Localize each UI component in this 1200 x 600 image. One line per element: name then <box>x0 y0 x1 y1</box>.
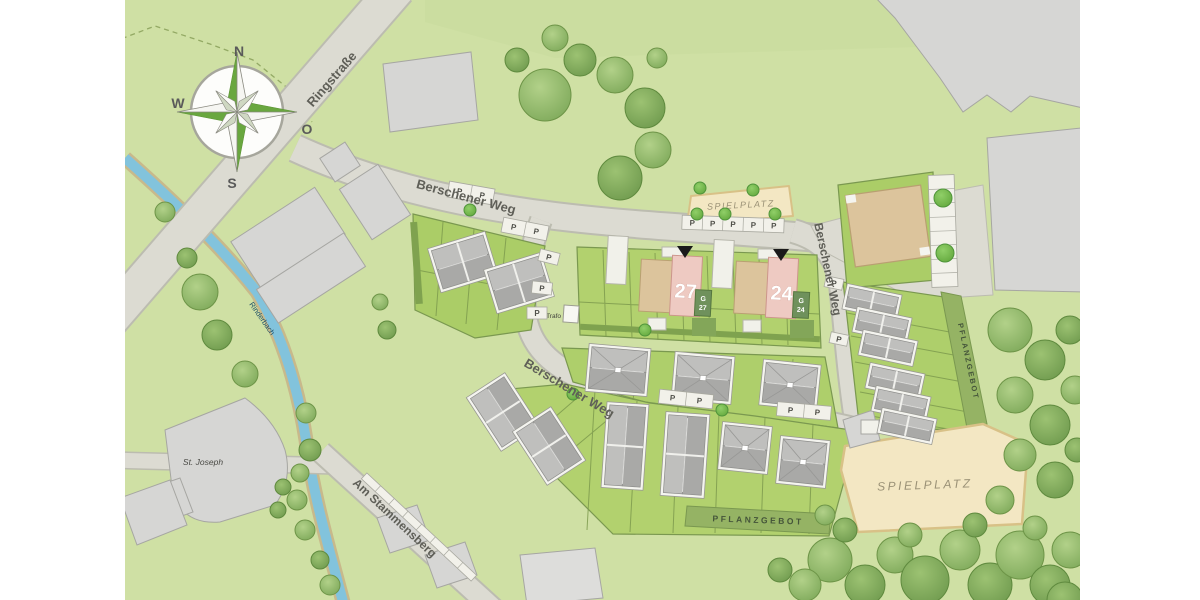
tree-icon <box>845 565 885 600</box>
tree-icon <box>275 479 291 495</box>
parking-p-label: P <box>730 220 736 229</box>
tree-icon <box>202 320 232 350</box>
tree-icon <box>177 248 197 268</box>
tree-icon <box>287 490 307 510</box>
house-building <box>718 422 773 475</box>
tree-icon <box>833 518 857 542</box>
tree-icon <box>564 44 596 76</box>
tree-icon <box>769 208 781 220</box>
compass-label-south: S <box>227 175 236 191</box>
building-tan-row-2 <box>734 261 771 315</box>
tree-icon <box>1025 340 1065 380</box>
plot-24-number: 24 <box>770 282 794 305</box>
compass-label-east: O <box>302 121 313 137</box>
tree-icon <box>1030 405 1070 445</box>
parking-p-label: P <box>751 221 757 230</box>
tree-icon <box>505 48 529 72</box>
tree-icon <box>988 308 1032 352</box>
tree-icon <box>1056 316 1080 344</box>
tree-icon <box>719 208 731 220</box>
tree-icon <box>997 377 1033 413</box>
garage-24-letter: G <box>798 298 804 305</box>
tree-icon <box>296 403 316 423</box>
compass-label-north: N <box>234 43 244 59</box>
tree-icon <box>747 184 759 196</box>
tree-icon <box>519 69 571 121</box>
tree-icon <box>291 464 309 482</box>
tree-icon <box>815 505 835 525</box>
plot-27-number: 27 <box>674 280 697 303</box>
tree-icon <box>299 439 321 461</box>
tree-icon <box>270 502 286 518</box>
tree-icon <box>1004 439 1036 471</box>
compass-label-west: W <box>171 95 185 111</box>
tree-icon <box>691 208 703 220</box>
building-block-right <box>987 128 1080 292</box>
tree-icon <box>542 25 568 51</box>
tree-icon <box>934 189 952 207</box>
tree-icon <box>372 294 388 310</box>
tree-icon <box>320 575 340 595</box>
site-plan-page: PFLANZGEBOT PFLANZGEBOT SPIELPLATZ SPIEL… <box>0 0 1200 600</box>
tree-icon <box>1037 462 1073 498</box>
tree-icon <box>963 513 987 537</box>
tree-icon <box>901 556 949 600</box>
tree-icon <box>768 558 792 582</box>
tree-icon <box>694 182 706 194</box>
tree-icon <box>647 48 667 68</box>
building-tan-top-right <box>845 185 930 267</box>
garage-27-letter: G <box>700 296 706 303</box>
house-building <box>585 343 651 396</box>
tree-icon <box>378 321 396 339</box>
tree-icon <box>311 551 329 569</box>
house-building <box>660 412 710 499</box>
garage-27-number: 27 <box>699 305 707 312</box>
tree-icon <box>155 202 175 222</box>
parking-row: P <box>527 307 547 319</box>
parking-p-label: P <box>534 309 540 318</box>
tree-icon <box>986 486 1014 514</box>
tree-icon <box>625 88 665 128</box>
parking-p-label: P <box>710 219 716 228</box>
parking-row: P <box>531 281 552 295</box>
site-plan-map: PFLANZGEBOT PFLANZGEBOT SPIELPLATZ SPIEL… <box>125 0 1080 600</box>
tree-icon <box>936 244 954 262</box>
building-top-center <box>383 52 478 132</box>
tree-icon <box>789 569 821 600</box>
tree-icon <box>182 274 218 310</box>
tree-icon <box>635 132 671 168</box>
garage-24: G 24 <box>792 292 809 319</box>
church-label: St. Joseph <box>183 457 223 467</box>
garage-27: G 27 <box>694 290 711 317</box>
tree-icon <box>598 156 642 200</box>
tree-icon <box>1023 516 1047 540</box>
tree-icon <box>639 324 651 336</box>
tree-icon <box>898 523 922 547</box>
tree-icon <box>716 404 728 416</box>
house-building <box>776 436 831 489</box>
garage-24-number: 24 <box>797 307 805 314</box>
parking-p-label: P <box>771 221 777 230</box>
tree-icon <box>295 520 315 540</box>
tree-icon <box>597 57 633 93</box>
tree-icon <box>232 361 258 387</box>
map-frame: PFLANZGEBOT PFLANZGEBOT SPIELPLATZ SPIEL… <box>125 0 1080 600</box>
trafo-label: Trafo <box>546 313 561 320</box>
